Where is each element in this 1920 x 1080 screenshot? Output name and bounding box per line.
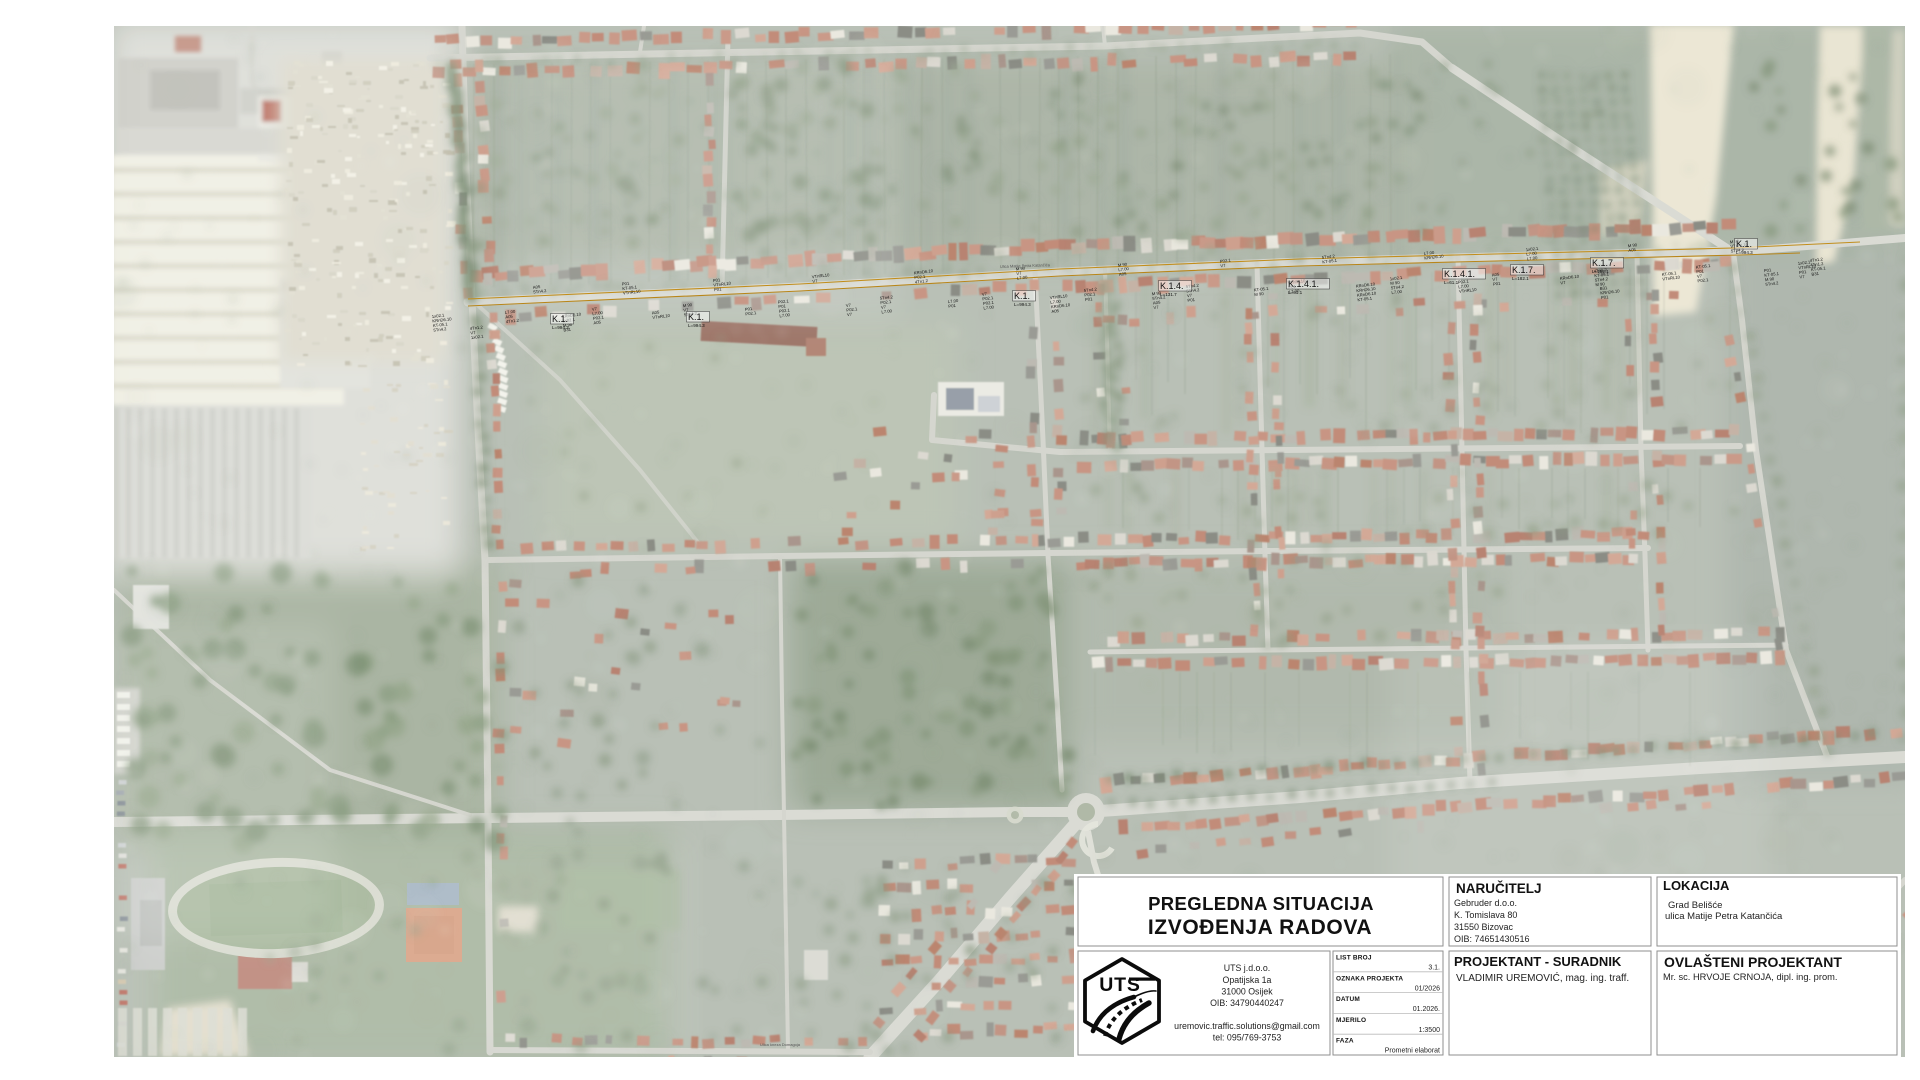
- svg-text:L=994.3: L=994.3: [552, 325, 569, 330]
- svg-text:K.1.: K.1.: [688, 312, 704, 322]
- svg-text:DATUM: DATUM: [1336, 996, 1360, 1003]
- svg-text:P01: P01: [1493, 281, 1502, 287]
- svg-text:uremovic.traffic.solutions@gma: uremovic.traffic.solutions@gmail.com: [1174, 1021, 1320, 1031]
- svg-text:A05: A05: [1119, 271, 1128, 277]
- svg-text:L=131.7: L=131.7: [1160, 292, 1177, 297]
- svg-text:P01: P01: [1085, 296, 1094, 302]
- svg-text:P01: P01: [948, 303, 957, 309]
- svg-text:L=61.1: L=61.1: [1444, 280, 1459, 285]
- svg-text:K.1.7.: K.1.7.: [1512, 265, 1536, 275]
- svg-text:NARUČITELJ: NARUČITELJ: [1456, 881, 1542, 896]
- svg-text:P01: P01: [714, 286, 723, 292]
- svg-text:Opatijska 1a: Opatijska 1a: [1223, 975, 1272, 985]
- svg-text:A05: A05: [1628, 247, 1637, 253]
- svg-text:01/2026: 01/2026: [1415, 985, 1440, 992]
- svg-text:1:3500: 1:3500: [1419, 1027, 1441, 1034]
- svg-text:K. Tomislava 80: K. Tomislava 80: [1454, 910, 1517, 920]
- svg-text:A05: A05: [593, 319, 602, 325]
- svg-text:L=994.3: L=994.3: [688, 323, 705, 328]
- svg-text:K.1.: K.1.: [552, 314, 568, 324]
- svg-text:K.1.: K.1.: [1736, 239, 1752, 249]
- svg-text:3.1.: 3.1.: [1428, 965, 1440, 972]
- svg-text:01.2026.: 01.2026.: [1413, 1006, 1440, 1013]
- svg-text:31000 Osijek: 31000 Osijek: [1221, 987, 1273, 997]
- svg-text:K.1.: K.1.: [1014, 291, 1030, 301]
- svg-text:ulica Matije Petra Katančića: ulica Matije Petra Katančića: [1665, 911, 1783, 922]
- svg-text:A05: A05: [1051, 308, 1060, 314]
- svg-text:K.1.4.: K.1.4.: [1160, 281, 1184, 291]
- svg-text:31550 Bizovac: 31550 Bizovac: [1454, 922, 1514, 932]
- svg-text:Grad Belišće: Grad Belišće: [1668, 900, 1722, 911]
- svg-text:OZNAKA PROJEKTA: OZNAKA PROJEKTA: [1336, 975, 1403, 982]
- svg-text:UTS j.d.o.o.: UTS j.d.o.o.: [1224, 963, 1270, 973]
- svg-text:OIB: 34790440247: OIB: 34790440247: [1210, 998, 1284, 1008]
- svg-text:OIB: 74651430516: OIB: 74651430516: [1454, 934, 1530, 944]
- svg-text:K.1.7.: K.1.7.: [1592, 258, 1616, 268]
- svg-text:LOKACIJA: LOKACIJA: [1663, 878, 1730, 893]
- svg-text:LIST BROJ: LIST BROJ: [1336, 955, 1372, 962]
- svg-text:K.1.4.1.: K.1.4.1.: [1288, 279, 1319, 289]
- svg-text:L=994.3: L=994.3: [1736, 250, 1753, 255]
- svg-text:L=61.1: L=61.1: [1288, 290, 1303, 295]
- svg-text:K.1.4.1.: K.1.4.1.: [1444, 269, 1475, 279]
- svg-text:PROJEKTANT - SURADNIK: PROJEKTANT - SURADNIK: [1454, 954, 1622, 969]
- svg-text:Ulica kneza Domagoja: Ulica kneza Domagoja: [760, 1042, 801, 1047]
- svg-text:MJERILO: MJERILO: [1336, 1017, 1366, 1024]
- svg-text:Gebruder d.o.o.: Gebruder d.o.o.: [1454, 898, 1517, 908]
- svg-text:Mr. sc. HRVOJE CRNOJA, dipl. i: Mr. sc. HRVOJE CRNOJA, dipl. ing. prom.: [1663, 972, 1837, 982]
- svg-text:Prometni elaborat: Prometni elaborat: [1385, 1048, 1440, 1055]
- svg-text:OVLAŠTENI PROJEKTANT: OVLAŠTENI PROJEKTANT: [1664, 953, 1842, 970]
- svg-text:PREGLEDNA SITUACIJA: PREGLEDNA SITUACIJA: [1148, 893, 1374, 914]
- svg-text:VLADIMIR UREMOVIĆ, mag. ing. t: VLADIMIR UREMOVIĆ, mag. ing. traff.: [1456, 971, 1629, 984]
- svg-text:FAZA: FAZA: [1336, 1038, 1354, 1045]
- svg-text:B31: B31: [1811, 271, 1820, 277]
- svg-text:P01: P01: [1601, 294, 1610, 300]
- svg-text:L=994.3: L=994.3: [1014, 302, 1031, 307]
- svg-text:L=182.1: L=182.1: [1512, 276, 1529, 281]
- svg-text:L=182.1: L=182.1: [1592, 269, 1609, 274]
- svg-text:UTS: UTS: [1099, 974, 1140, 996]
- svg-text:IZVOĐENJA RADOVA: IZVOĐENJA RADOVA: [1148, 916, 1372, 939]
- svg-text:P01: P01: [1187, 297, 1196, 303]
- svg-text:tel: 095/769-3753: tel: 095/769-3753: [1213, 1033, 1282, 1043]
